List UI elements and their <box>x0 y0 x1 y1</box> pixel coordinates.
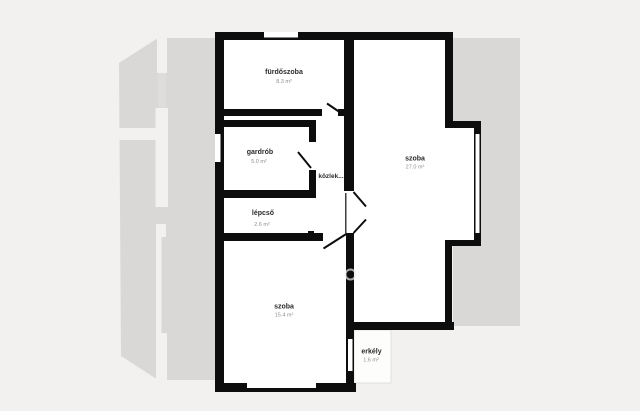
svg-text:8.3 m²: 8.3 m² <box>276 79 292 85</box>
svg-text:5.0 m²: 5.0 m² <box>251 159 267 165</box>
svg-text:lépcső: lépcső <box>252 210 274 217</box>
svg-text:fürdőszoba: fürdőszoba <box>265 69 303 76</box>
svg-text:szoba: szoba <box>405 156 425 163</box>
svg-text:15.4 m²: 15.4 m² <box>275 313 294 319</box>
svg-text:1.6 m²: 1.6 m² <box>363 358 379 364</box>
svg-text:szoba: szoba <box>274 304 294 311</box>
svg-text:erkély: erkély <box>361 349 381 356</box>
svg-text:gardrób: gardrób <box>247 149 273 156</box>
svg-text:közlek...: közlek... <box>318 173 343 180</box>
svg-text:2.6 m²: 2.6 m² <box>254 222 270 228</box>
svg-text:27.0 m²: 27.0 m² <box>406 165 425 171</box>
